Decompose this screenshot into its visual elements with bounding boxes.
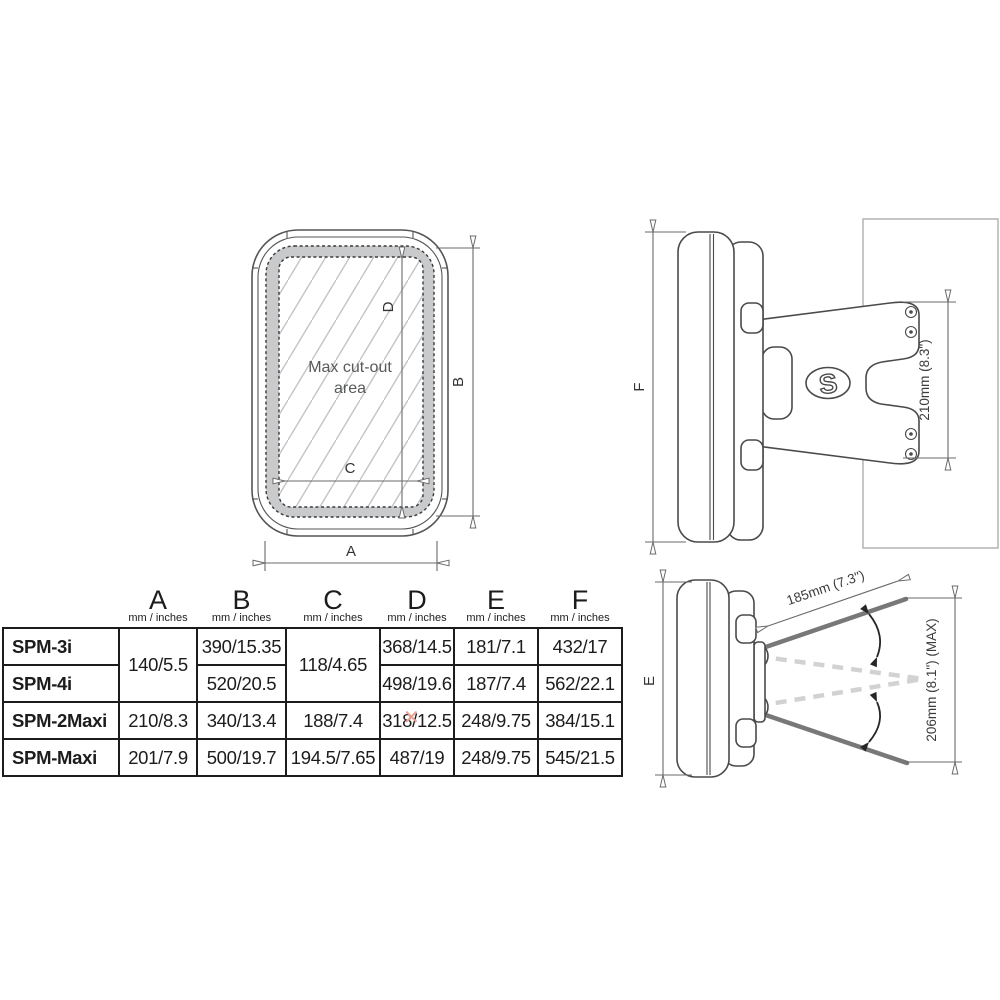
ghost-arm-upper (757, 656, 923, 679)
rotation-arrow-bottom (869, 702, 880, 742)
arm-down (757, 712, 907, 763)
row-name: SPM-2Maxi (3, 702, 119, 739)
cutout-label-line1: Max cut-out (308, 359, 392, 376)
cell-f: 384/15.1 (538, 702, 622, 739)
cell-a: 201/7.9 (119, 739, 197, 776)
cell-e: 248/9.75 (454, 702, 538, 739)
cell-f: 545/21.5 (538, 739, 622, 776)
cell-a-merged: 140/5.5 (119, 628, 197, 702)
dimension-b-label: B (450, 377, 467, 387)
header-col-d: D mm / inches (380, 588, 454, 628)
col-a-unit: mm / inches (119, 612, 197, 624)
pod-body-tilt (677, 580, 729, 777)
row-name: SPM-Maxi (3, 739, 119, 776)
rotation-arrow-top (869, 614, 880, 657)
spec-table: A mm / inches B mm / inches C mm / inche… (2, 588, 623, 777)
col-d-unit: mm / inches (380, 612, 454, 624)
row-name: SPM-4i (3, 665, 119, 702)
cell-d: 487/19 (380, 739, 454, 776)
table-row: SPM-3i 140/5.5 390/15.35 118/4.65 368/14… (3, 628, 622, 665)
pod-clip-bottom-tilt (736, 719, 756, 747)
dimension-c-label: C (345, 460, 356, 477)
col-a-letter: A (119, 588, 197, 612)
dimension-arm-length-label: 185mm (7.3") (785, 567, 867, 608)
cell-c: 194.5/7.65 (286, 739, 380, 776)
cell-f: 562/22.1 (538, 665, 622, 702)
cell-b: 520/20.5 (197, 665, 286, 702)
cell-e: 181/7.1 (454, 628, 538, 665)
diagrams: Max cut-out area D C B A (0, 0, 1000, 1000)
dimension-f-label: F (631, 382, 648, 391)
pod-clip-top-tilt (736, 615, 756, 643)
col-c-letter: C (286, 588, 380, 612)
col-f-letter: F (538, 588, 622, 612)
cell-d: 368/14.5 (380, 628, 454, 665)
dimension-a-label: A (346, 543, 356, 560)
col-b-letter: B (197, 588, 286, 612)
dimension-arm-length: 185mm (7.3") (768, 567, 898, 626)
col-b-unit: mm / inches (197, 612, 286, 624)
spec-table-header-row: A mm / inches B mm / inches C mm / inche… (3, 588, 622, 628)
cell-a: 210/8.3 (119, 702, 197, 739)
row-name: SPM-3i (3, 628, 119, 665)
cell-e: 187/7.4 (454, 665, 538, 702)
dimension-bracket-height-label: 210mm (8.3") (917, 339, 932, 420)
header-col-b: B mm / inches (197, 588, 286, 628)
table-row: SPM-Maxi 201/7.9 500/19.7 194.5/7.65 487… (3, 739, 622, 776)
col-d-letter: D (380, 588, 454, 612)
header-col-c: C mm / inches (286, 588, 380, 628)
tilt-view-diagram: E 185mm (7.3") 206mm (8.1") (MAX) (641, 567, 962, 777)
front-view-diagram: Max cut-out area D C B A (252, 230, 480, 571)
ghost-arm-lower (757, 679, 923, 706)
col-e-letter: E (454, 588, 538, 612)
cell-d: 498/19.6 (380, 665, 454, 702)
cell-f: 432/17 (538, 628, 622, 665)
artifact-x-mark: ✕ (403, 705, 420, 730)
dimension-e-label: E (641, 676, 658, 686)
pod-body-side (678, 232, 734, 542)
header-empty (3, 588, 119, 628)
cell-e: 248/9.75 (454, 739, 538, 776)
cell-c-merged: 118/4.65 (286, 628, 380, 702)
dimension-max-span-label: 206mm (8.1") (MAX) (924, 618, 939, 741)
dimension-d-label: D (380, 301, 397, 312)
pod-mount-knuckle (762, 347, 792, 419)
side-view-diagram: S F 210mm (8.3") (631, 219, 998, 548)
table-row: SPM-2Maxi 210/8.3 340/13.4 188/7.4 318/1… (3, 702, 622, 739)
header-col-f: F mm / inches (538, 588, 622, 628)
col-e-unit: mm / inches (454, 612, 538, 624)
cell-b: 340/13.4 (197, 702, 286, 739)
arm-up (757, 599, 906, 650)
technical-drawing-page: Max cut-out area D C B A (0, 0, 1000, 1000)
header-col-a: A mm / inches (119, 588, 197, 628)
cell-b: 500/19.7 (197, 739, 286, 776)
hinge-plate (754, 642, 765, 722)
col-f-unit: mm / inches (538, 612, 622, 624)
pod-clip-bottom (741, 440, 763, 470)
pod-clip-top (741, 303, 763, 333)
col-c-unit: mm / inches (286, 612, 380, 624)
cell-b: 390/15.35 (197, 628, 286, 665)
cell-c: 188/7.4 (286, 702, 380, 739)
dimension-b: B (436, 248, 480, 516)
dimension-a: A (265, 541, 437, 571)
cutout-label-line2: area (334, 380, 366, 397)
header-col-e: E mm / inches (454, 588, 538, 628)
